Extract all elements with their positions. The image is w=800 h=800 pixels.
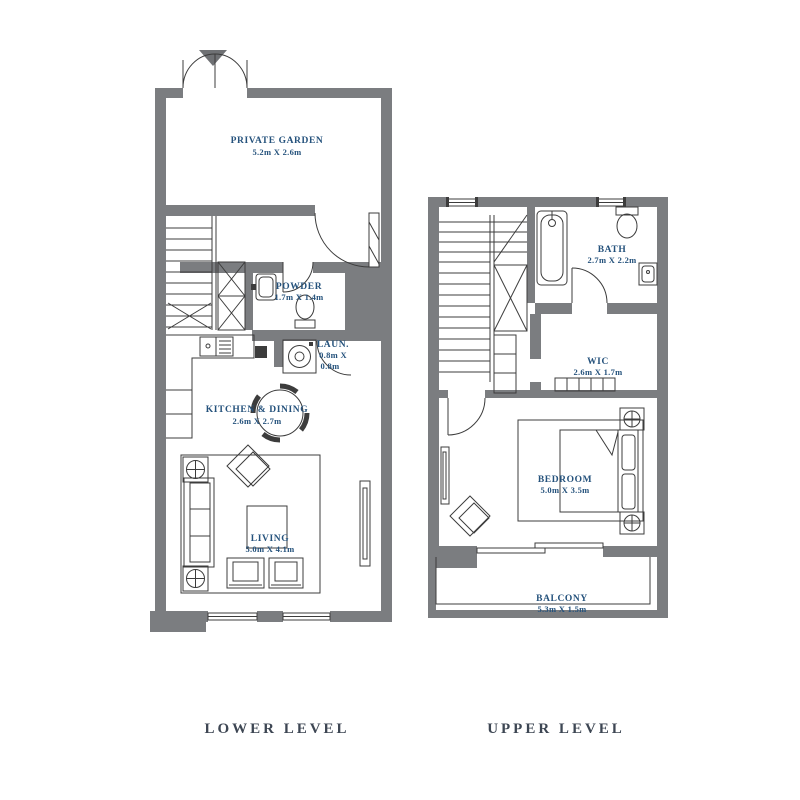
room-dims-kitchen-dining: 2.6m X 2.7m [232,416,281,426]
void-shaft-upper [494,265,527,331]
entry-marker-icon [199,50,227,66]
entry-door [315,213,379,267]
sliding-door [477,543,603,553]
room-label-kitchen-dining: KITCHEN & DINING [206,405,309,415]
accent-chair-icon [227,445,270,487]
side-table-icon [183,566,208,591]
room-label-powder: POWDER [276,282,322,292]
cooktop-icon [255,346,267,358]
hall-shelves [494,335,516,393]
tv-unit-icon [441,447,449,504]
upper-level-plan: BATH 2.7m X 2.2m WIC 2.6m X 1.7m BEDROOM… [428,197,668,618]
room-dims-bath: 2.7m X 2.2m [587,255,636,265]
room-dims-bedroom: 5.0m X 3.5m [540,485,589,495]
tv-unit-icon [360,481,370,566]
entry-door-swing [315,213,369,267]
wic-shelves [555,378,615,391]
armchair-icon [269,558,303,588]
armchair-icon [227,558,264,588]
nightstand-icon [620,512,644,534]
staircase-upper [439,215,527,382]
washer-icon [283,340,316,373]
sofa-icon [184,478,214,567]
floorplan-canvas: PRIVATE GARDEN 5.2m X 2.6m POWDER 1.7m X… [0,0,800,800]
bathtub-icon [537,211,567,285]
room-label-bath: BATH [598,245,627,255]
room-dims-living: 5.0m X 4.1m [245,544,294,554]
kitchen-sink-icon [200,337,233,356]
nightstand-icon [620,408,644,430]
lower-level-caption: LOWER LEVEL [204,721,349,737]
garden-entry-door [183,50,247,88]
room-dims-laundry-1: 0.8m X [319,350,347,360]
room-label-living: LIVING [251,534,289,544]
upper-level-caption: UPPER LEVEL [487,721,625,737]
room-label-wic: WIC [587,357,609,367]
bedroom-door-swing [448,398,485,435]
toilet-icon [616,207,638,238]
lower-level-plan: PRIVATE GARDEN 5.2m X 2.6m POWDER 1.7m X… [150,50,392,632]
room-label-balcony: BALCONY [536,594,588,604]
room-dims-wic: 2.6m X 1.7m [573,367,622,377]
bath-door-swing [572,268,607,303]
living-room [181,445,370,593]
room-dims-laundry-2: 0.8m [321,361,340,371]
accent-chair-icon [450,496,490,536]
bed-icon [560,430,638,512]
room-label-private-garden: PRIVATE GARDEN [231,136,324,146]
bath-sink-icon [639,263,657,285]
room-dims-private-garden: 5.2m X 2.6m [252,147,301,157]
room-dims-balcony: 5.3m X 1.5m [537,604,586,614]
room-dims-powder: 1.7m X 1.4m [274,292,323,302]
floorplan-page: PRIVATE GARDEN 5.2m X 2.6m POWDER 1.7m X… [0,0,800,800]
room-label-bedroom: BEDROOM [538,475,592,485]
room-label-laundry: LAUN. [317,340,349,350]
